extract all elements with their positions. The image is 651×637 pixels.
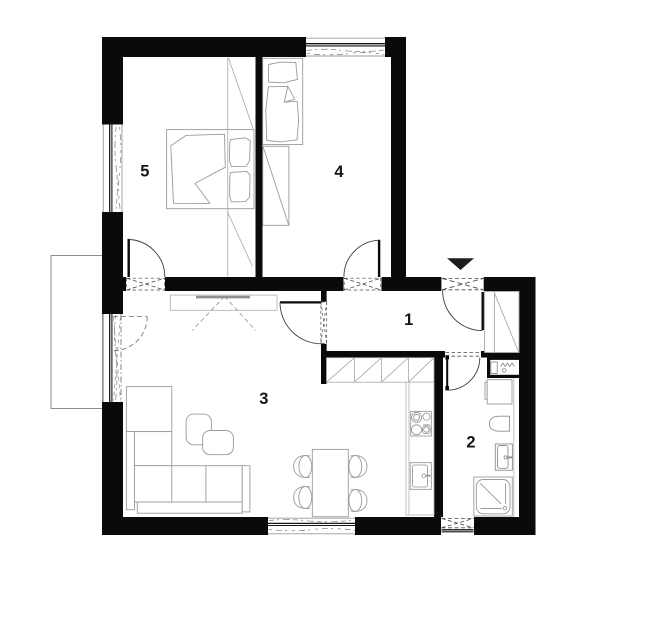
svg-text:5: 5 bbox=[140, 163, 149, 181]
svg-text:2: 2 bbox=[466, 434, 475, 452]
svg-text:1: 1 bbox=[404, 311, 413, 329]
svg-text:3: 3 bbox=[259, 390, 268, 408]
svg-text:4: 4 bbox=[334, 163, 344, 181]
